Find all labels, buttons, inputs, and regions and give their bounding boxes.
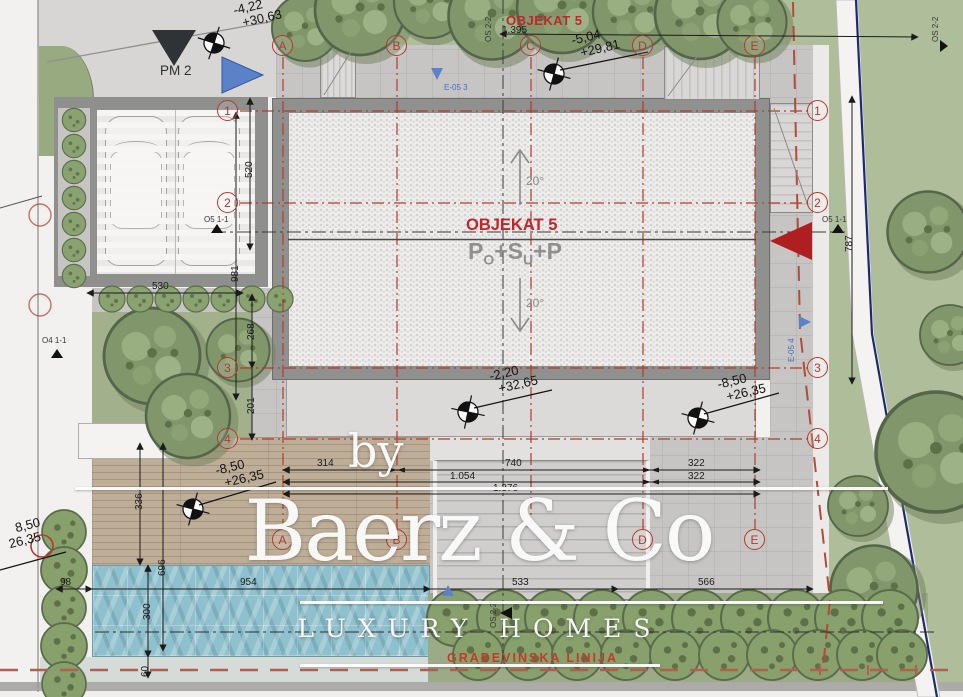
grid-row-2-right: 2 [807, 192, 828, 213]
bushes-garage [62, 108, 293, 312]
floors-s: +S [494, 238, 523, 264]
section-label-o5-left: O5 1-1 [204, 215, 228, 224]
dim-d-e-2: 322 [688, 471, 705, 482]
grid-col-e-top: E [744, 35, 765, 56]
watermark-rule-bottom [300, 664, 660, 667]
ref-label-e05-4: E-05 4 [787, 338, 796, 362]
dim-deck-h: 336 [134, 493, 145, 510]
section-label-o5-right: O5 1-1 [822, 215, 846, 224]
grid-row-3-label: 3 [224, 361, 231, 375]
grid-row-3-label2: 3 [814, 361, 821, 375]
grid-row-4-right: 4 [807, 428, 828, 449]
grid-col-e-bottom: E [744, 529, 765, 550]
grid-col-b-top: B [386, 35, 407, 56]
ref-label-e05-3: E-05 3 [444, 83, 468, 92]
grid-row-1-right: 1 [807, 100, 828, 121]
watermark-rule-mid [300, 601, 883, 604]
red-arrow-east [770, 222, 812, 260]
section-label-os22-topright: OS 2-2 [931, 17, 940, 42]
dim-a-b: 314 [317, 458, 334, 469]
section-tick-os22-top [940, 40, 948, 52]
grid-col-c-label: C [526, 39, 535, 53]
roof-slope-down-label: 20° [526, 296, 544, 310]
floors-p-sub: O [483, 252, 494, 268]
dim-a-d: 1.054 [450, 471, 475, 482]
dim-total-top: 1.395 [502, 25, 527, 36]
floors-p2: +P [533, 238, 562, 264]
grid-col-e-label: E [750, 39, 758, 53]
grid-row-3-left: 3 [217, 357, 238, 378]
section-label-os22-top: OS 2-2 [484, 17, 493, 42]
site-plan: OBJEKAT 5 1.395 OS 2-2 OS 2-2 OS 2-2 O5 … [0, 0, 963, 697]
pm2-triangle [152, 30, 196, 66]
watermark-brand: Baerz & Co [229, 482, 729, 580]
grid-row-2-label2: 2 [814, 196, 821, 210]
grid-col-c-top: C [520, 35, 541, 56]
grid-col-a-label: A [278, 39, 286, 53]
grid-col-b-label: B [392, 39, 400, 53]
building-name: OBJEKAT 5 [466, 216, 557, 235]
blue-arrow-nw [222, 57, 263, 93]
watermark-by: by [348, 424, 403, 478]
grid-row-2-label: 2 [224, 196, 231, 210]
dim-channel: 60 [140, 666, 151, 677]
section-tick-o5-right [832, 224, 844, 233]
roof-slope-up-label: 20° [526, 174, 544, 188]
grid-col-e-label2: E [750, 533, 758, 547]
floors-p: P [468, 238, 483, 264]
grid-row-1-label2: 1 [814, 104, 821, 118]
grid-row-3-right: 3 [807, 357, 828, 378]
blue-marker-e053 [431, 68, 443, 80]
dim-d-e-1: 322 [688, 458, 705, 469]
grid-col-d-label: D [638, 39, 647, 53]
building-floors: PO+SU+P [468, 238, 562, 268]
section-label-o4: O4 1-1 [42, 336, 66, 345]
blue-marker-e054 [799, 316, 811, 328]
grid-row-4-label2: 4 [814, 432, 821, 446]
dim-b-d: 740 [505, 458, 522, 469]
building-line-label: GRAĐEVINSKA LINIJA [447, 651, 618, 665]
boundary-tick [0, 196, 42, 208]
dim-left-268: 268 [246, 323, 257, 340]
section-tick-o4 [51, 349, 63, 358]
grid-row-4-label: 4 [224, 432, 231, 446]
grid-col-d-top: D [632, 35, 653, 56]
dim-pool-h: 300 [142, 603, 153, 620]
grid-row-4-left: 4 [217, 428, 238, 449]
dim-left-201: 201 [246, 397, 257, 414]
dim-deck-pool: 696 [157, 559, 168, 576]
dim-garage-d: 520 [244, 161, 255, 178]
dim-pool-off: 98 [60, 577, 71, 588]
watermark-tagline: LUXURY HOMES [270, 614, 690, 643]
floors-s-sub: U [523, 252, 533, 268]
grid-row-1-label: 1 [224, 104, 231, 118]
dim-garage-w: 530 [152, 281, 169, 292]
grid-row-2-left: 2 [217, 192, 238, 213]
dim-left-981: 981 [230, 265, 241, 282]
grid-row-1-left: 1 [217, 100, 238, 121]
stair-diagonal-3 [774, 108, 808, 206]
grid-col-a-top: A [272, 35, 293, 56]
pm2-label: PM 2 [160, 63, 192, 78]
section-tick-o5-left [211, 224, 223, 233]
dim-right-h: 787 [844, 235, 855, 252]
